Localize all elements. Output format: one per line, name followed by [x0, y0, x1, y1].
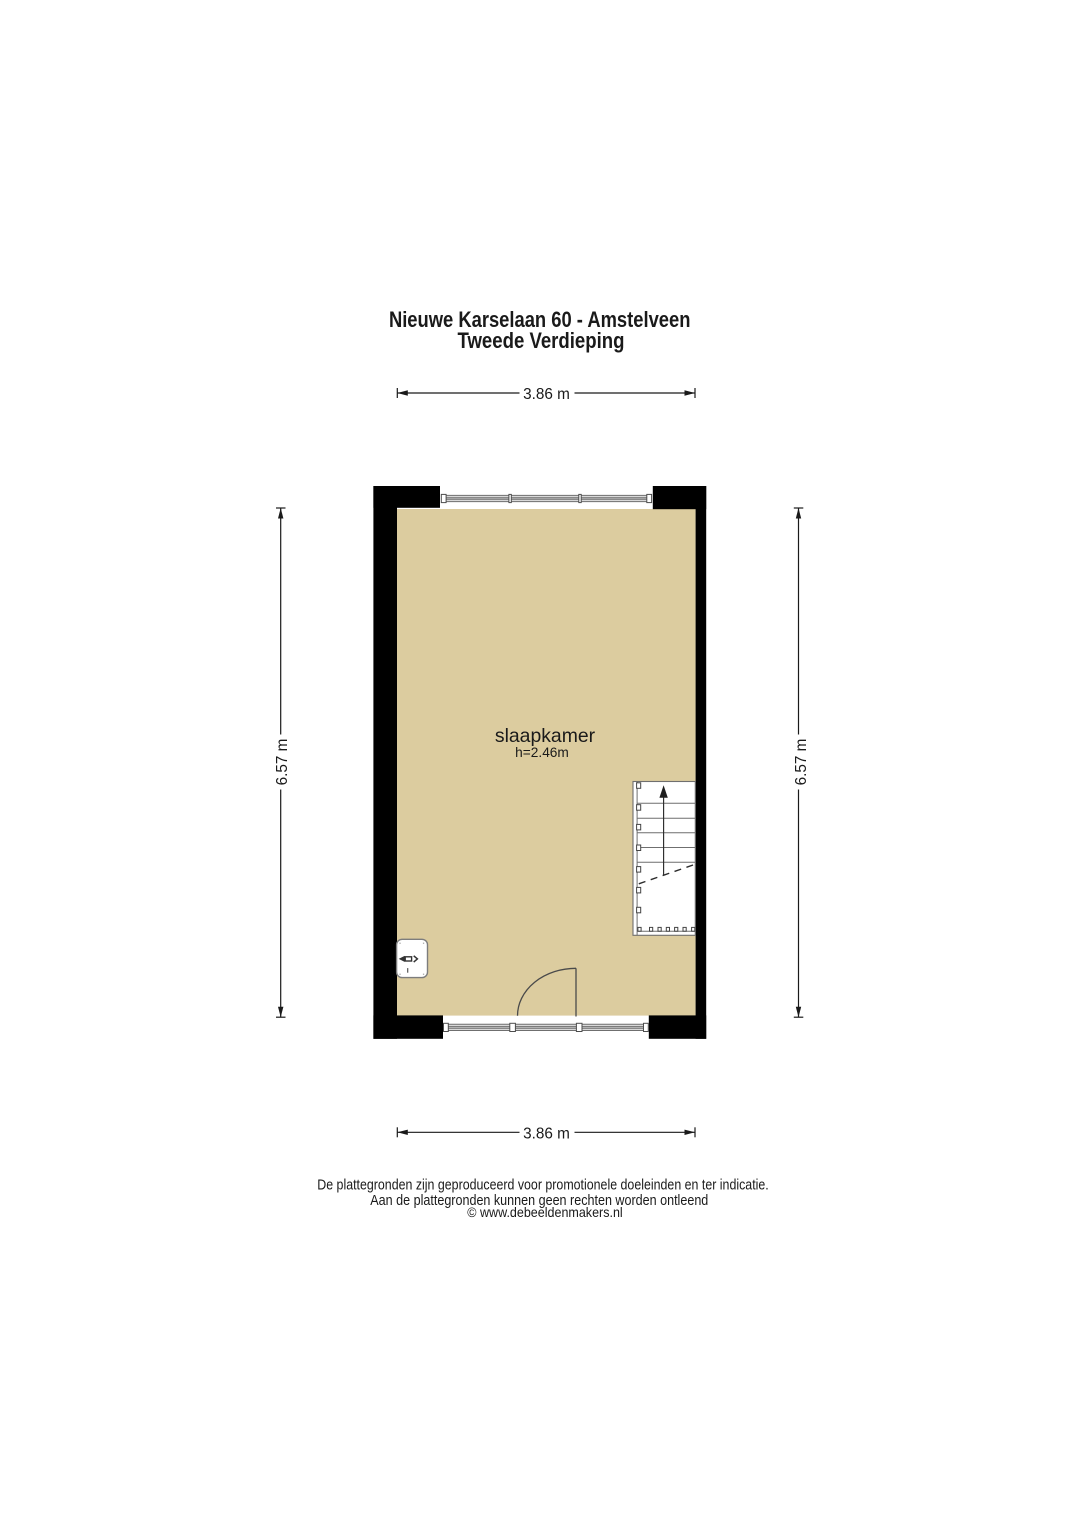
svg-text:3.86 m: 3.86 m: [523, 1125, 570, 1142]
svg-text:© www.debeeldenmakers.nl: © www.debeeldenmakers.nl: [467, 1204, 622, 1220]
svg-text:3.86 m: 3.86 m: [523, 386, 570, 403]
svg-text:Tweede Verdieping: Tweede Verdieping: [458, 328, 625, 353]
svg-text:slaapkamer: slaapkamer: [495, 725, 596, 747]
svg-text:6.57 m: 6.57 m: [274, 739, 291, 786]
svg-text:h=2.46m: h=2.46m: [515, 745, 569, 760]
svg-text:6.57 m: 6.57 m: [793, 739, 810, 786]
